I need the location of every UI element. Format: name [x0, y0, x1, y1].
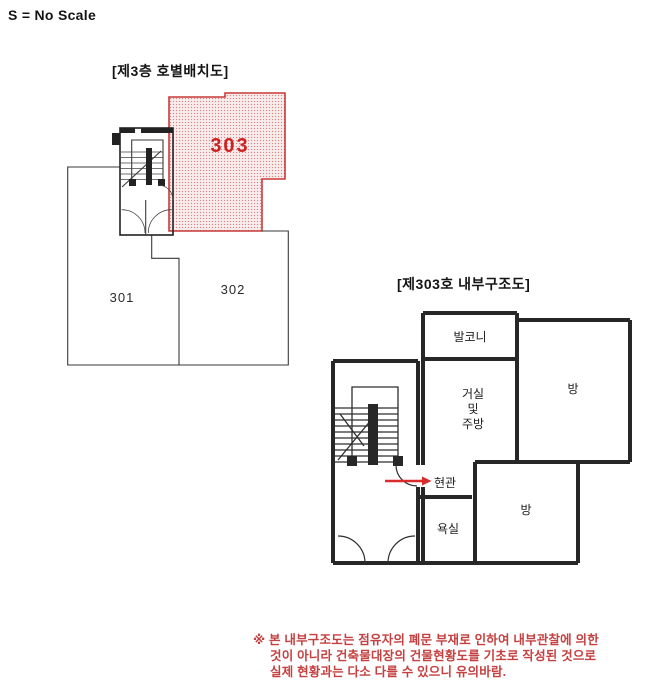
disclaimer-line-3: 실제 현황과는 다소 다를 수 있으니 유의바람. — [253, 664, 655, 680]
stairwell-2 — [334, 387, 417, 563]
unit-303-label: 303 — [210, 135, 249, 157]
room-label-living-1: 거실 — [462, 387, 484, 401]
stair-entry-door-arcs — [338, 536, 415, 563]
floor-layout-plan: 303 301 302 — [55, 88, 305, 380]
interior-structure-plan: 발코니 방 거실 및 주방 현관 욕실 방 — [330, 308, 640, 570]
entrance-door-arc — [396, 465, 417, 486]
unit-301-label: 301 — [110, 290, 135, 305]
room-label-living-3: 주방 — [462, 417, 484, 431]
appraisal-floor-plan-page: S = No Scale [제3층 호별배치도] 303 — [0, 0, 663, 700]
room-label-bottom-room: 방 — [520, 503, 531, 517]
disclaimer-line-1: ※ 본 내부구조도는 점유자의 폐문 부재로 인하여 내부관찰에 의한 — [253, 632, 655, 648]
disclaimer-note: ※ 본 내부구조도는 점유자의 폐문 부재로 인하여 내부관찰에 의한 것이 아… — [253, 632, 655, 680]
unit-302-label: 302 — [221, 282, 246, 297]
room-label-entrance: 현관 — [434, 476, 456, 490]
room-label-top-room: 방 — [567, 382, 578, 396]
interior-plan-title: [제303호 내부구조도] — [397, 274, 530, 294]
unit-303-highlight — [169, 93, 285, 231]
entry-door-arcs — [122, 210, 172, 233]
room-label-bathroom: 욕실 — [437, 522, 459, 536]
disclaimer-line-2: 것이 아니라 건축물대장의 건물현황도를 기초로 작성된 것으로 — [253, 648, 655, 664]
stairwell-1 — [112, 128, 173, 235]
floor-layout-title: [제3층 호별배치도] — [112, 61, 229, 81]
scale-note: S = No Scale — [8, 7, 96, 23]
room-label-living-2: 및 — [467, 402, 478, 416]
room-label-balcony: 발코니 — [453, 330, 486, 344]
